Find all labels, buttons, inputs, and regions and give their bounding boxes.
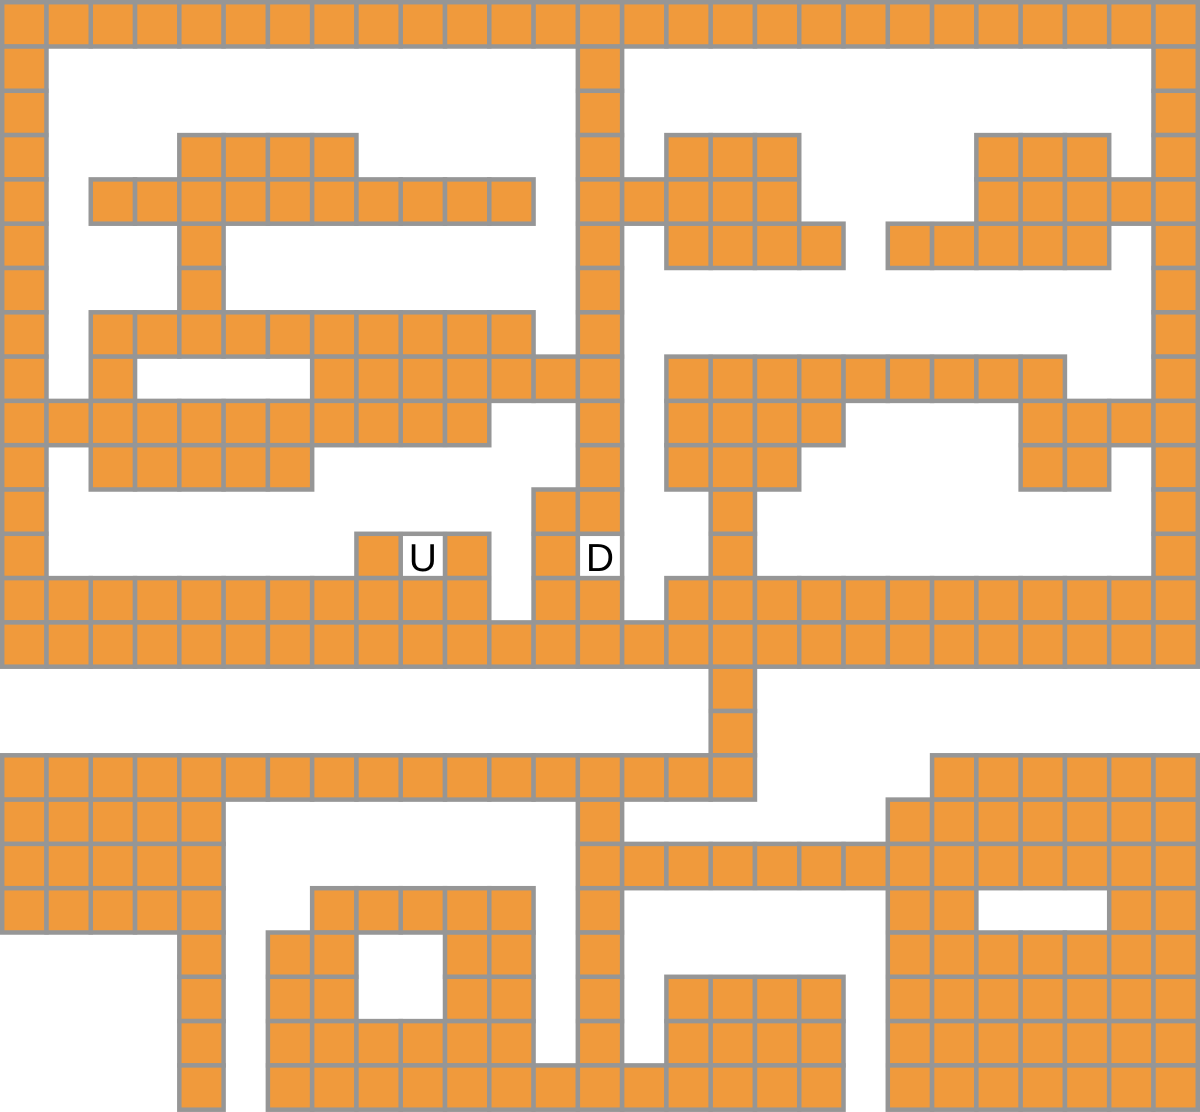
svg-text:U: U [409,537,437,580]
svg-text:D: D [586,537,614,580]
